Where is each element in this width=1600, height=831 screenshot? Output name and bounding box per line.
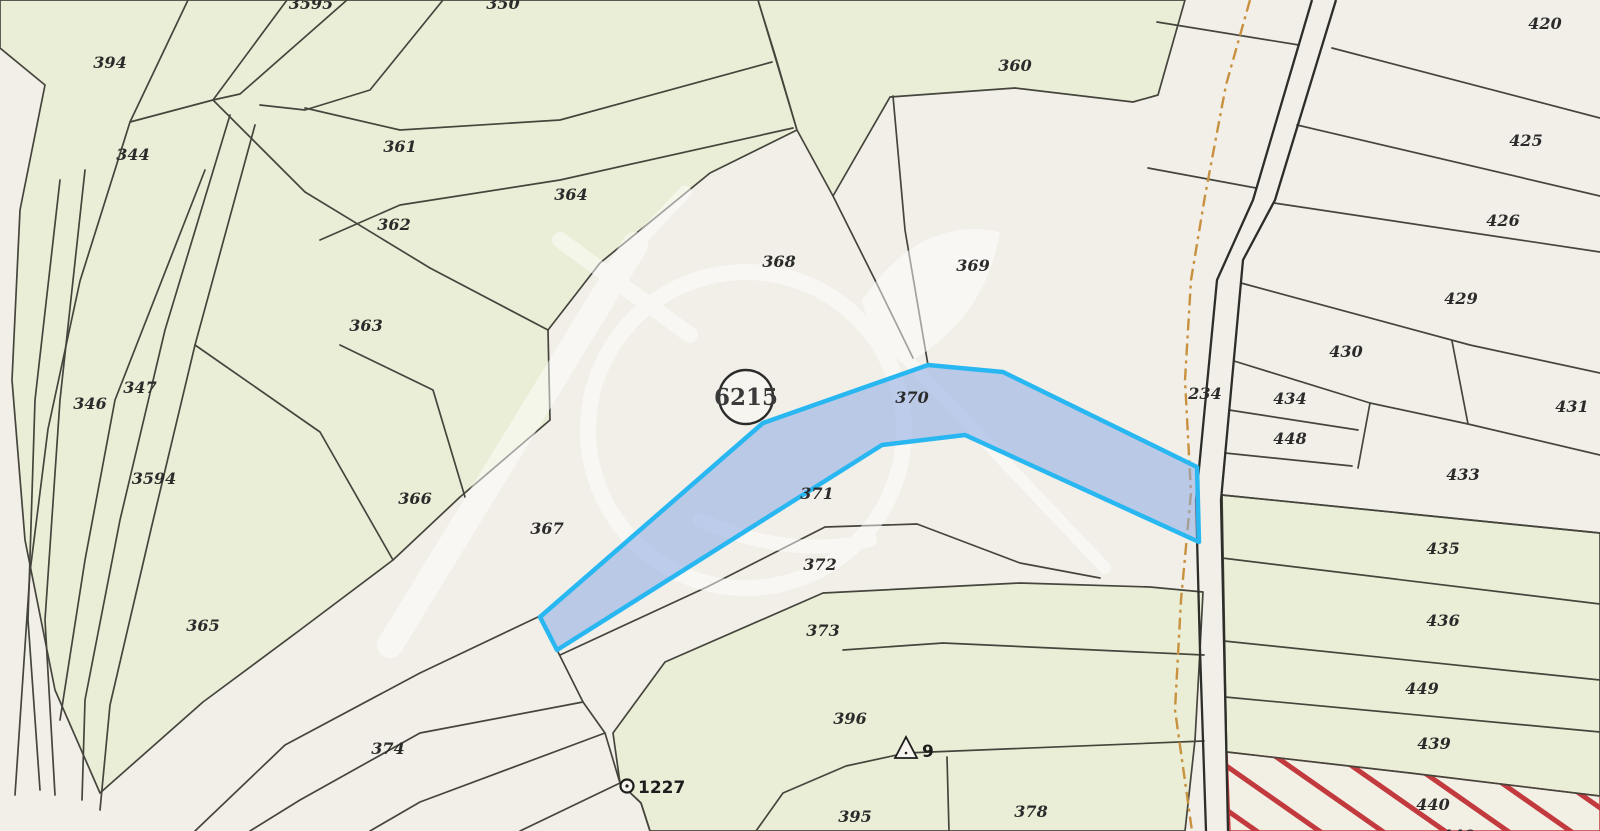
parcel-label-436: 436 xyxy=(1426,611,1459,630)
parcel-label-369: 369 xyxy=(956,256,989,275)
parcel-label-346: 346 xyxy=(73,394,106,413)
parcel-label-368: 368 xyxy=(762,252,795,271)
parcel-label-429: 429 xyxy=(1444,289,1477,308)
parcel-label-364: 364 xyxy=(554,185,587,204)
parcel-label-394: 394 xyxy=(93,53,126,72)
parcel-label-439: 439 xyxy=(1417,734,1450,753)
parcel-label-361: 361 xyxy=(383,137,416,156)
parcel-label-370: 370 xyxy=(895,388,928,407)
parcel-label-378: 378 xyxy=(1014,802,1047,821)
parcel-label-3595: 3595 xyxy=(289,0,334,13)
parcel-label-434: 434 xyxy=(1273,389,1306,408)
parcel-label-431: 431 xyxy=(1555,397,1588,416)
parcel-label-363: 363 xyxy=(349,316,382,335)
parcel-label-440: 440 xyxy=(1441,826,1474,831)
parcel-label-371: 371 xyxy=(800,484,833,503)
parcel-label-426: 426 xyxy=(1486,211,1519,230)
parcel-label-234: 234 xyxy=(1187,384,1221,403)
parcel-label-347: 347 xyxy=(123,378,156,397)
parcel-label-350: 350 xyxy=(486,0,519,13)
parcel-label-374: 374 xyxy=(371,739,404,758)
parcel-label-396: 396 xyxy=(833,709,866,728)
parcel-label-430: 430 xyxy=(1329,342,1362,361)
parcel-label-435: 435 xyxy=(1426,539,1459,558)
parcel-label-9: 9 xyxy=(922,742,934,762)
parcel-label-344: 344 xyxy=(116,145,149,164)
parcel-label-448: 448 xyxy=(1273,429,1306,448)
parcel-label-3594: 3594 xyxy=(132,469,177,488)
parcel-label-440: 440 xyxy=(1416,795,1449,814)
parcel-label-395: 395 xyxy=(838,807,871,826)
parcel-label-433: 433 xyxy=(1446,465,1479,484)
map-canvas[interactable]: 3943443595350361362364363346347359436636… xyxy=(0,0,1600,831)
triangulation-point-dot xyxy=(905,752,908,755)
parcel-label-373: 373 xyxy=(806,621,839,640)
parcel-label-6215: 6215 xyxy=(714,384,778,411)
parcel-label-360: 360 xyxy=(998,56,1031,75)
map-viewport[interactable]: 3943443595350361362364363346347359436636… xyxy=(0,0,1600,831)
parcel-label-366: 366 xyxy=(398,489,431,508)
parcel-label-372: 372 xyxy=(803,555,836,574)
parcel-label-420: 420 xyxy=(1528,14,1561,33)
parcel-label-365: 365 xyxy=(186,616,219,635)
parcel-label-1227: 1227 xyxy=(638,778,685,798)
parcel-label-449: 449 xyxy=(1405,679,1438,698)
parcel-label-367: 367 xyxy=(530,519,563,538)
parcel-label-425: 425 xyxy=(1509,131,1542,150)
survey-point-dot xyxy=(625,784,628,787)
parcel-label-362: 362 xyxy=(377,215,410,234)
